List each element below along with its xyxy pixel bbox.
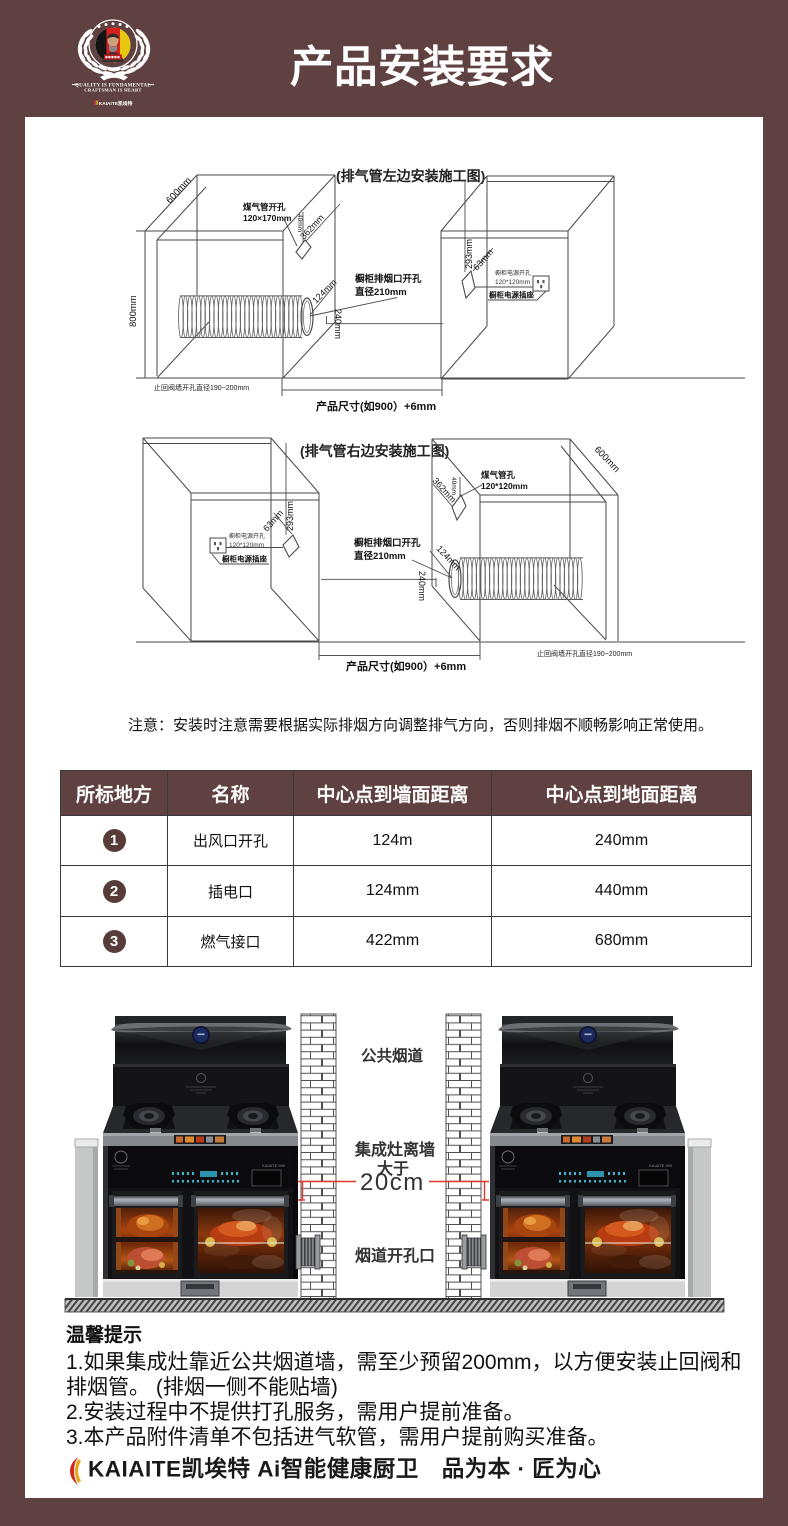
svg-text:124mm: 124mm: [310, 277, 338, 305]
svg-text:橱柜电源开孔: 橱柜电源开孔: [495, 269, 531, 277]
svg-text:产品尺寸(如900）+6mm: 产品尺寸(如900）+6mm: [316, 399, 436, 413]
svg-text:KAIAITE凯埃特: KAIAITE凯埃特: [99, 100, 133, 107]
svg-text:CRAFTSMAN IS HEART: CRAFTSMAN IS HEART: [84, 88, 142, 93]
svg-text:直径210mm: 直径210mm: [355, 286, 407, 298]
svg-text:烟道开孔口: 烟道开孔口: [355, 1246, 435, 1265]
svg-text:橱柜电源插座: 橱柜电源插座: [488, 290, 534, 300]
svg-text:240mm: 240mm: [333, 309, 343, 339]
svg-text:120*120mm: 120*120mm: [495, 279, 530, 286]
svg-text:240mm: 240mm: [417, 571, 427, 601]
svg-text:120*120mm: 120*120mm: [481, 481, 528, 491]
svg-text:293mm: 293mm: [285, 501, 295, 531]
svg-text:(排气管左边安装施工图): (排气管左边安装施工图): [336, 168, 485, 184]
svg-text:直径210mm: 直径210mm: [354, 550, 406, 562]
svg-text:橱柜电源插座: 橱柜电源插座: [221, 554, 267, 564]
svg-text:橱柜排烟口开孔: 橱柜排烟口开孔: [354, 537, 421, 549]
svg-text:800mm: 800mm: [128, 295, 139, 327]
svg-text:600mm: 600mm: [164, 175, 194, 206]
svg-text:公共烟道: 公共烟道: [361, 1046, 424, 1065]
svg-text:产品尺寸(如900）+6mm: 产品尺寸(如900）+6mm: [346, 659, 466, 673]
svg-text:止回阀墙开孔直径190~200mm: 止回阀墙开孔直径190~200mm: [537, 649, 632, 658]
svg-text:124mm: 124mm: [435, 544, 463, 573]
svg-text:20cm: 20cm: [360, 1169, 425, 1196]
svg-text:120×170mm: 120×170mm: [243, 213, 292, 223]
svg-text:止回阀墙开孔直径190~200mm: 止回阀墙开孔直径190~200mm: [154, 383, 249, 392]
svg-text:(排气管右边安装施工图): (排气管右边安装施工图): [300, 443, 449, 459]
svg-text:KAIAITE凯埃特 Ai智能健康厨卫 品为本 · 匠为心: KAIAITE凯埃特 Ai智能健康厨卫 品为本 · 匠为心: [88, 1456, 601, 1482]
svg-text:橱柜电源开孔: 橱柜电源开孔: [229, 532, 265, 540]
svg-text:煤气管开孔: 煤气管开孔: [243, 202, 286, 212]
svg-text:集成灶离墙: 集成灶离墙: [354, 1140, 435, 1159]
svg-text:煤气管孔: 煤气管孔: [481, 470, 516, 480]
svg-text:63mm: 63mm: [261, 508, 285, 533]
svg-text:63mm: 63mm: [471, 247, 495, 272]
svg-text:橱柜排烟口开孔: 橱柜排烟口开孔: [355, 273, 422, 285]
